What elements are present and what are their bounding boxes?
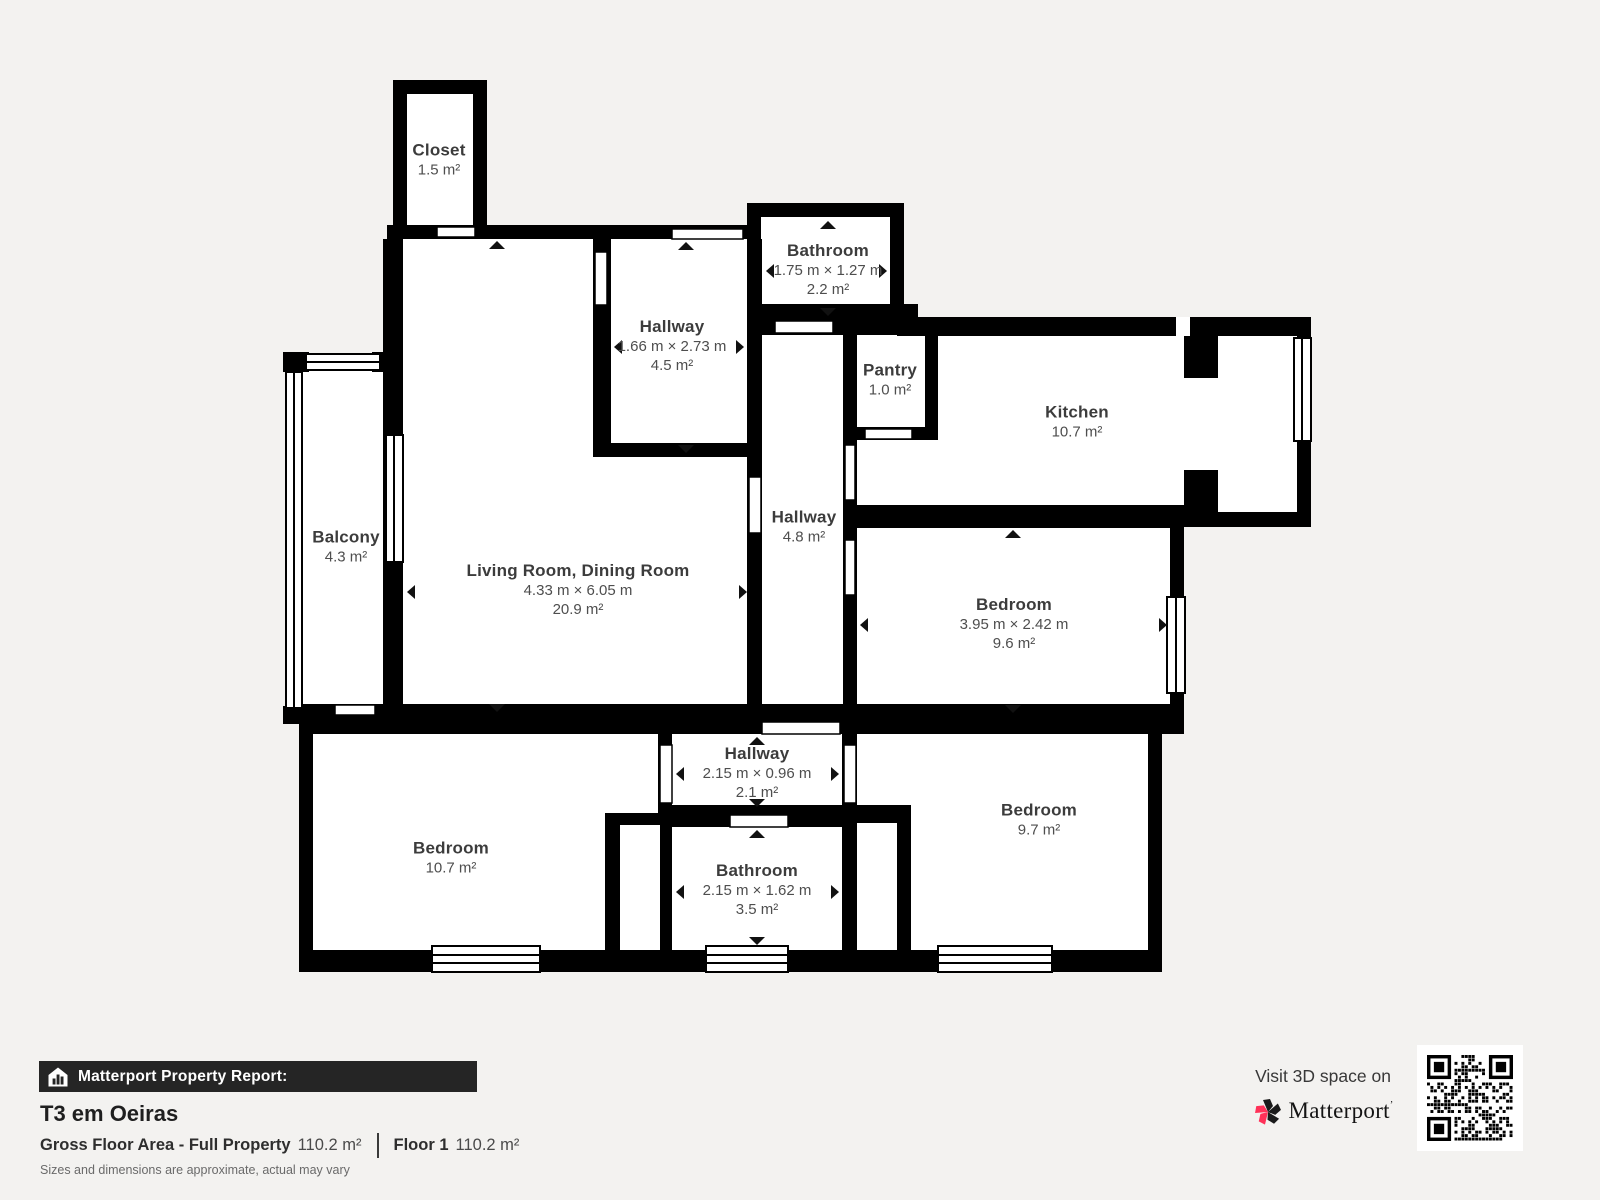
wall-segment bbox=[1184, 336, 1218, 378]
matterport-logo-icon bbox=[1253, 1096, 1283, 1126]
window-balcony-slider bbox=[386, 435, 403, 562]
wall-segment bbox=[1184, 512, 1308, 527]
wall-segment bbox=[299, 704, 1170, 734]
door-closet bbox=[437, 227, 475, 237]
room-label-pantry: Pantry 1.0 m² bbox=[863, 361, 917, 400]
room-name: Hallway bbox=[772, 508, 837, 528]
wall-segment bbox=[842, 805, 857, 953]
wall-segment bbox=[393, 80, 407, 239]
door-balcony-bottom bbox=[335, 705, 375, 715]
room-label-bedroom-right: Bedroom 3.95 m × 2.42 m 9.6 m² bbox=[960, 595, 1069, 653]
gross-area-value: 110.2 m² bbox=[298, 1136, 362, 1155]
room-name: Balcony bbox=[312, 528, 380, 548]
room-area: 4.5 m² bbox=[618, 356, 727, 375]
room-area: 10.7 m² bbox=[413, 859, 489, 878]
room-label-closet: Closet 1.5 m² bbox=[412, 141, 465, 180]
brand-row: Matterport’ bbox=[1245, 1096, 1401, 1126]
trademark-symbol: ’ bbox=[1390, 1100, 1394, 1111]
door-hallway-small-top bbox=[762, 722, 840, 734]
wall-segment bbox=[393, 80, 487, 94]
floor-plan bbox=[0, 0, 1600, 1200]
floor-label: Floor 1 bbox=[394, 1136, 449, 1155]
room-area: 2.2 m² bbox=[774, 280, 883, 299]
room-label-bathroom-bottom: Bathroom 2.15 m × 1.62 m 3.5 m² bbox=[703, 861, 812, 919]
area-stats-row: Gross Floor Area - Full Property 110.2 m… bbox=[40, 1133, 519, 1158]
door-bedroom-bottom-right bbox=[844, 745, 856, 803]
room-area: 2.1 m² bbox=[703, 783, 812, 802]
room-area: 10.7 m² bbox=[1045, 423, 1109, 442]
room-name: Kitchen bbox=[1045, 403, 1109, 423]
room-area: 1.0 m² bbox=[863, 381, 917, 400]
matterport-wordmark: Matterport’ bbox=[1289, 1098, 1394, 1124]
room-dims: 1.75 m × 1.27 m bbox=[774, 261, 883, 280]
wall-segment bbox=[747, 239, 762, 706]
door-pantry bbox=[865, 429, 912, 439]
room-name: Living Room, Dining Room bbox=[467, 561, 690, 581]
wall-segment bbox=[897, 823, 911, 953]
room-label-kitchen: Kitchen 10.7 m² bbox=[1045, 403, 1109, 442]
stats-separator bbox=[377, 1133, 379, 1158]
room-label-bathroom-top: Bathroom 1.75 m × 1.27 m 2.2 m² bbox=[774, 241, 883, 299]
room-area: 4.8 m² bbox=[772, 528, 837, 547]
wall-segment bbox=[605, 825, 620, 952]
room-area: 4.3 m² bbox=[312, 548, 380, 567]
room-dims: 2.15 m × 0.96 m bbox=[703, 764, 812, 783]
room-label-bedroom-bottom-right: Bedroom 9.7 m² bbox=[1001, 801, 1077, 840]
door-living-hallway bbox=[749, 477, 761, 533]
room-area: 9.7 m² bbox=[1001, 821, 1077, 840]
room-label-balcony: Balcony 4.3 m² bbox=[312, 528, 380, 567]
wall-segment bbox=[842, 805, 911, 823]
room-name: Hallway bbox=[703, 744, 812, 764]
door-bathroom-top bbox=[775, 321, 833, 333]
room-area: 9.6 m² bbox=[960, 634, 1069, 653]
room-label-hallway-top: Hallway 1.66 m × 2.73 m 4.5 m² bbox=[618, 317, 727, 375]
room-label-living-dining: Living Room, Dining Room 4.33 m × 6.05 m… bbox=[467, 561, 690, 619]
door-bathroom-bottom bbox=[730, 815, 788, 827]
door-bedroom-right bbox=[845, 540, 855, 595]
floor-plan-report: Closet 1.5 m² Bathroom 1.75 m × 1.27 m 2… bbox=[0, 0, 1600, 1200]
window-bedroom-bottom-right bbox=[938, 946, 1052, 972]
window-bathroom-bottom bbox=[706, 946, 788, 972]
door-entry bbox=[672, 229, 743, 239]
door-hallway-living bbox=[595, 252, 607, 305]
gross-area-label: Gross Floor Area - Full Property bbox=[40, 1136, 291, 1155]
window-bedroom-right bbox=[1167, 597, 1185, 693]
house-chart-icon bbox=[48, 1067, 68, 1087]
disclaimer-text: Sizes and dimensions are approximate, ac… bbox=[40, 1163, 350, 1177]
room-label-hallway-small: Hallway 2.15 m × 0.96 m 2.1 m² bbox=[703, 744, 812, 802]
window-kitchen-right bbox=[1294, 338, 1311, 441]
room-name: Bathroom bbox=[703, 861, 812, 881]
wall-segment bbox=[605, 813, 672, 825]
visit-3d-label: Visit 3D space on bbox=[1245, 1066, 1401, 1087]
room-label-bedroom-left: Bedroom 10.7 m² bbox=[413, 839, 489, 878]
room-dims: 1.66 m × 2.73 m bbox=[618, 337, 727, 356]
room-dims: 4.33 m × 6.05 m bbox=[467, 581, 690, 600]
wall-segment bbox=[660, 825, 672, 952]
room-name: Bedroom bbox=[1001, 801, 1077, 821]
wall-break bbox=[1176, 317, 1190, 336]
room-area: 20.9 m² bbox=[467, 600, 690, 619]
room-label-hallway-mid: Hallway 4.8 m² bbox=[772, 508, 837, 547]
room-area: 1.5 m² bbox=[412, 161, 465, 180]
wall-segment bbox=[897, 317, 1311, 336]
wall-segment bbox=[843, 505, 1184, 528]
report-bar-label: Matterport Property Report: bbox=[78, 1068, 288, 1086]
room-name: Pantry bbox=[863, 361, 917, 381]
qr-code bbox=[1417, 1045, 1523, 1151]
room-dims: 3.95 m × 2.42 m bbox=[960, 615, 1069, 634]
wall-segment bbox=[1148, 704, 1162, 972]
room-name: Closet bbox=[412, 141, 465, 161]
window-bedroom-left-bottom bbox=[432, 946, 540, 972]
door-bedroom-left bbox=[660, 745, 672, 803]
room-dims: 2.15 m × 1.62 m bbox=[703, 881, 812, 900]
property-title: T3 em Oeiras bbox=[40, 1101, 178, 1127]
door-kitchen bbox=[845, 445, 855, 500]
wall-segment bbox=[1184, 470, 1218, 512]
qr-modules bbox=[1427, 1055, 1513, 1141]
wall-segment bbox=[299, 704, 313, 972]
floor-value: 110.2 m² bbox=[456, 1136, 520, 1155]
room-name: Bathroom bbox=[774, 241, 883, 261]
room-name: Bedroom bbox=[960, 595, 1069, 615]
report-title-bar: Matterport Property Report: bbox=[39, 1061, 477, 1092]
wall-segment bbox=[473, 80, 487, 239]
wall-segment bbox=[747, 203, 904, 217]
visit-3d-block: Visit 3D space on Matterport’ bbox=[1245, 1066, 1401, 1126]
room-name: Bedroom bbox=[413, 839, 489, 859]
room-area: 3.5 m² bbox=[703, 900, 812, 919]
window-balcony-top bbox=[306, 354, 380, 370]
room-name: Hallway bbox=[618, 317, 727, 337]
window-balcony-left bbox=[286, 372, 302, 708]
